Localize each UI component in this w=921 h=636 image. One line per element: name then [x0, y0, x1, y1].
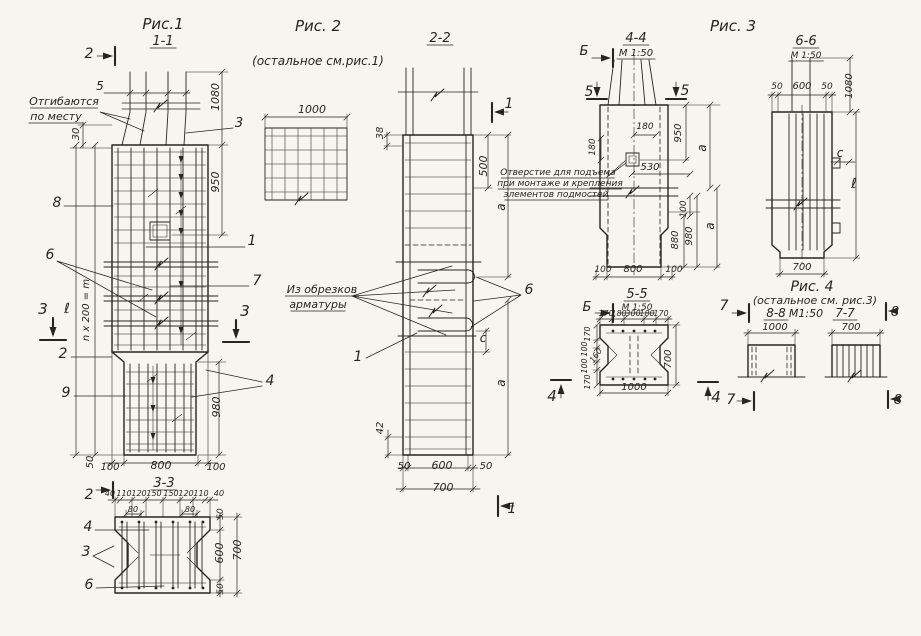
sec44-dim-950: 950 — [673, 123, 684, 142]
sec33-dim-120b: 120 — [178, 489, 193, 498]
sec44-cut5-left: 5 — [585, 84, 594, 100]
sec55-cutB: Б — [583, 300, 592, 315]
fig1-dim-1080: 1080 — [209, 83, 222, 111]
sec22-dim-50-right: 50 — [480, 461, 493, 472]
sec55-dim-700: 700 — [663, 349, 674, 368]
sec55-cut4-right: 4 — [711, 388, 721, 406]
sec55-dim-1000: 1000 — [621, 382, 646, 393]
sec66-dim-50a: 50 — [771, 82, 783, 92]
sec22-dim-700: 700 — [433, 481, 454, 494]
sec22-dim-42: 42 — [375, 422, 386, 435]
sec22-dim-500: 500 — [477, 156, 490, 177]
fig4-cut8-bottom: 8 — [894, 393, 902, 408]
sec44-cut5-right: 5 — [681, 83, 690, 99]
fig1-dim-100-left: 100 — [100, 462, 119, 473]
sec44-dim-100-left: 100 — [594, 265, 611, 275]
sec55-dim-180a: 180 — [611, 309, 626, 318]
sec33-cut2: 2 — [85, 487, 94, 503]
sec33-dim-40b: 40 — [214, 489, 224, 498]
sec66-dim-c: c — [837, 146, 844, 160]
sec22-cut1-bottom: 1 — [508, 501, 517, 517]
fig4-cut7-bottom: 7 — [727, 392, 736, 408]
sec33-dim-110b: 110 — [193, 489, 208, 498]
sec66-dim-600: 600 — [792, 81, 811, 92]
fig1-dim-800: 800 — [151, 459, 172, 472]
sec44-dim-180h: 180 — [636, 122, 653, 132]
fig1-pos6: 6 — [46, 247, 55, 263]
sec66-scale: М 1:50 — [791, 51, 822, 61]
blueprint-page: Рис.11-125Отгибаютсяпо месту301080395081… — [0, 0, 921, 636]
sec55-dim-170b: 170 — [653, 309, 668, 318]
sec55-dim-160: 160 — [588, 347, 604, 365]
sec66-dim-50b: 50 — [821, 82, 833, 92]
annotation-layer: Рис.11-125Отгибаютсяпо месту301080395081… — [28, 15, 902, 595]
note-hole-line1: Отверстие для подъема — [500, 168, 615, 178]
fig1-dim-ell: ℓ — [63, 301, 70, 317]
sec44-dim-880: 880 — [670, 230, 681, 249]
sec33-dim-600: 600 — [213, 543, 226, 564]
sec66-dim-700: 700 — [792, 262, 811, 273]
fig1-pos1: 1 — [248, 233, 257, 249]
fig3-title: Рис. 3 — [710, 17, 756, 35]
sec33-dim-150a: 150 — [146, 489, 161, 498]
drawing-canvas: Рис.11-125Отгибаютсяпо месту301080395081… — [0, 0, 921, 636]
sec77-dim-700: 700 — [841, 322, 860, 333]
sec44-scale: М 1:50 — [619, 48, 653, 59]
sec55-bar-dots — [612, 330, 657, 381]
note-offcuts-line2: арматуры — [289, 298, 347, 311]
fig1-dim-50-bottom: 50 — [85, 456, 96, 469]
sec22-dim-a-top: a — [494, 203, 508, 210]
sec55-title: 5-5 — [626, 287, 647, 302]
fig1-cut3-left: 3 — [38, 300, 48, 318]
fig1-cut3-right: 3 — [240, 302, 250, 320]
fig1-dim-5: 5 — [96, 79, 104, 93]
sec55-dim-170-l2: 170 — [583, 374, 592, 389]
fig4-scale: М1:50 — [789, 307, 823, 320]
sec22-dim-c: c — [480, 331, 487, 345]
sec33-pos4: 4 — [84, 519, 93, 535]
fig1-dim-30: 30 — [71, 128, 82, 141]
sec44-dim-530: 530 — [640, 162, 659, 173]
fig1-pos4: 4 — [266, 373, 275, 389]
fig1-section-label: 1-1 — [152, 34, 173, 49]
sec22-dim-38: 38 — [375, 127, 386, 140]
sec77-title: 7-7 — [835, 306, 855, 320]
sec44-dim-800: 800 — [623, 264, 642, 275]
sec55-cut4-left: 4 — [547, 387, 557, 405]
sec22-dim-600: 600 — [432, 459, 453, 472]
fig1-pos9: 9 — [62, 385, 71, 401]
fig1-note-bend-line2: по месту — [30, 110, 82, 123]
fig4-title: Рис. 4 — [790, 279, 833, 295]
sec55-dim-180b: 180 — [639, 309, 654, 318]
sec44-title: 4-4 — [625, 31, 646, 46]
sec55-dim-100-l2: 100 — [580, 358, 589, 373]
fig1-dim-980: 980 — [210, 397, 223, 418]
sec22-dim-50-left: 50 — [398, 461, 411, 472]
sec22-cut1-top: 1 — [505, 96, 514, 112]
sec55-cut7: 7 — [720, 298, 729, 314]
sec44-cutB-top: Б — [580, 44, 589, 59]
sec33-dim-40a: 40 — [105, 489, 115, 498]
sec22-title: 2-2 — [429, 31, 450, 46]
fig2-note: (остальное см.рис.1) — [252, 54, 384, 68]
sec33-pos3: 3 — [82, 544, 91, 560]
fig1-dim-950: 950 — [209, 172, 222, 193]
note-offcuts-line1: Из обрезков — [287, 283, 358, 296]
sec33-dim-50-bottom: 50 — [216, 583, 226, 595]
sec88-title: 8-8 — [766, 306, 786, 320]
sec33-dim-120a: 120 — [131, 489, 146, 498]
sec66-dim-ell: ℓ — [850, 176, 857, 192]
fig1-note-bend-line1: Отгибаются — [29, 95, 99, 108]
sec55-dim-100-l1: 100 — [580, 341, 589, 356]
sec22-pos6: 6 — [525, 282, 534, 298]
sec33-dim-80b: 80 — [185, 505, 195, 514]
sec33-dim-50-top: 50 — [216, 508, 226, 520]
fig1-pos7: 7 — [253, 273, 262, 289]
sec66-dim-1080: 1080 — [844, 73, 855, 98]
fig1-pos2-mid: 2 — [59, 346, 68, 362]
sec33-drawing — [93, 482, 242, 597]
fig2-title: Рис. 2 — [295, 17, 341, 35]
sec22-dim-a-bottom: a — [494, 379, 508, 386]
fig4-cut8-top: 8 — [891, 305, 899, 320]
fig1-pos3-top: 3 — [235, 116, 243, 131]
fig1-dim-100-right: 100 — [206, 462, 225, 473]
sec44-dim-a-top: a — [695, 144, 709, 151]
sec44-dim-100-right: 100 — [665, 265, 682, 275]
fig1-cut2-top: 2 — [85, 46, 94, 62]
sec33-pos6: 6 — [85, 577, 94, 593]
sec44-dim-100: 100 — [679, 200, 689, 217]
note-hole-line2: при монтаже и крепления — [497, 179, 623, 189]
sec55-dim-300: 300 — [625, 309, 640, 318]
sec44-dim-980: 980 — [684, 226, 695, 245]
sec33-dim-150b: 150 — [163, 489, 178, 498]
fig1-pos8: 8 — [53, 195, 62, 211]
fig1-dim-n200: n x 200 = m — [81, 279, 92, 341]
sec44-dim-180v: 180 — [588, 138, 598, 155]
sec33-dim-110a: 110 — [116, 489, 131, 498]
sec55-dim-170-l1: 170 — [583, 326, 592, 341]
fig2-mesh — [262, 114, 350, 205]
sec33-dim-700: 700 — [231, 540, 244, 561]
fig2-dim-1000: 1000 — [298, 103, 326, 116]
sec66-title: 6-6 — [795, 34, 816, 49]
sec33-dim-80a: 80 — [128, 505, 138, 514]
sec44-dim-a-bottom: a — [703, 222, 717, 229]
note-hole-line3: элементов подмостей — [504, 190, 609, 200]
sec88-dim-1000: 1000 — [762, 322, 787, 333]
sec22-pos1: 1 — [354, 349, 363, 365]
fig1-title: Рис.1 — [142, 15, 183, 33]
